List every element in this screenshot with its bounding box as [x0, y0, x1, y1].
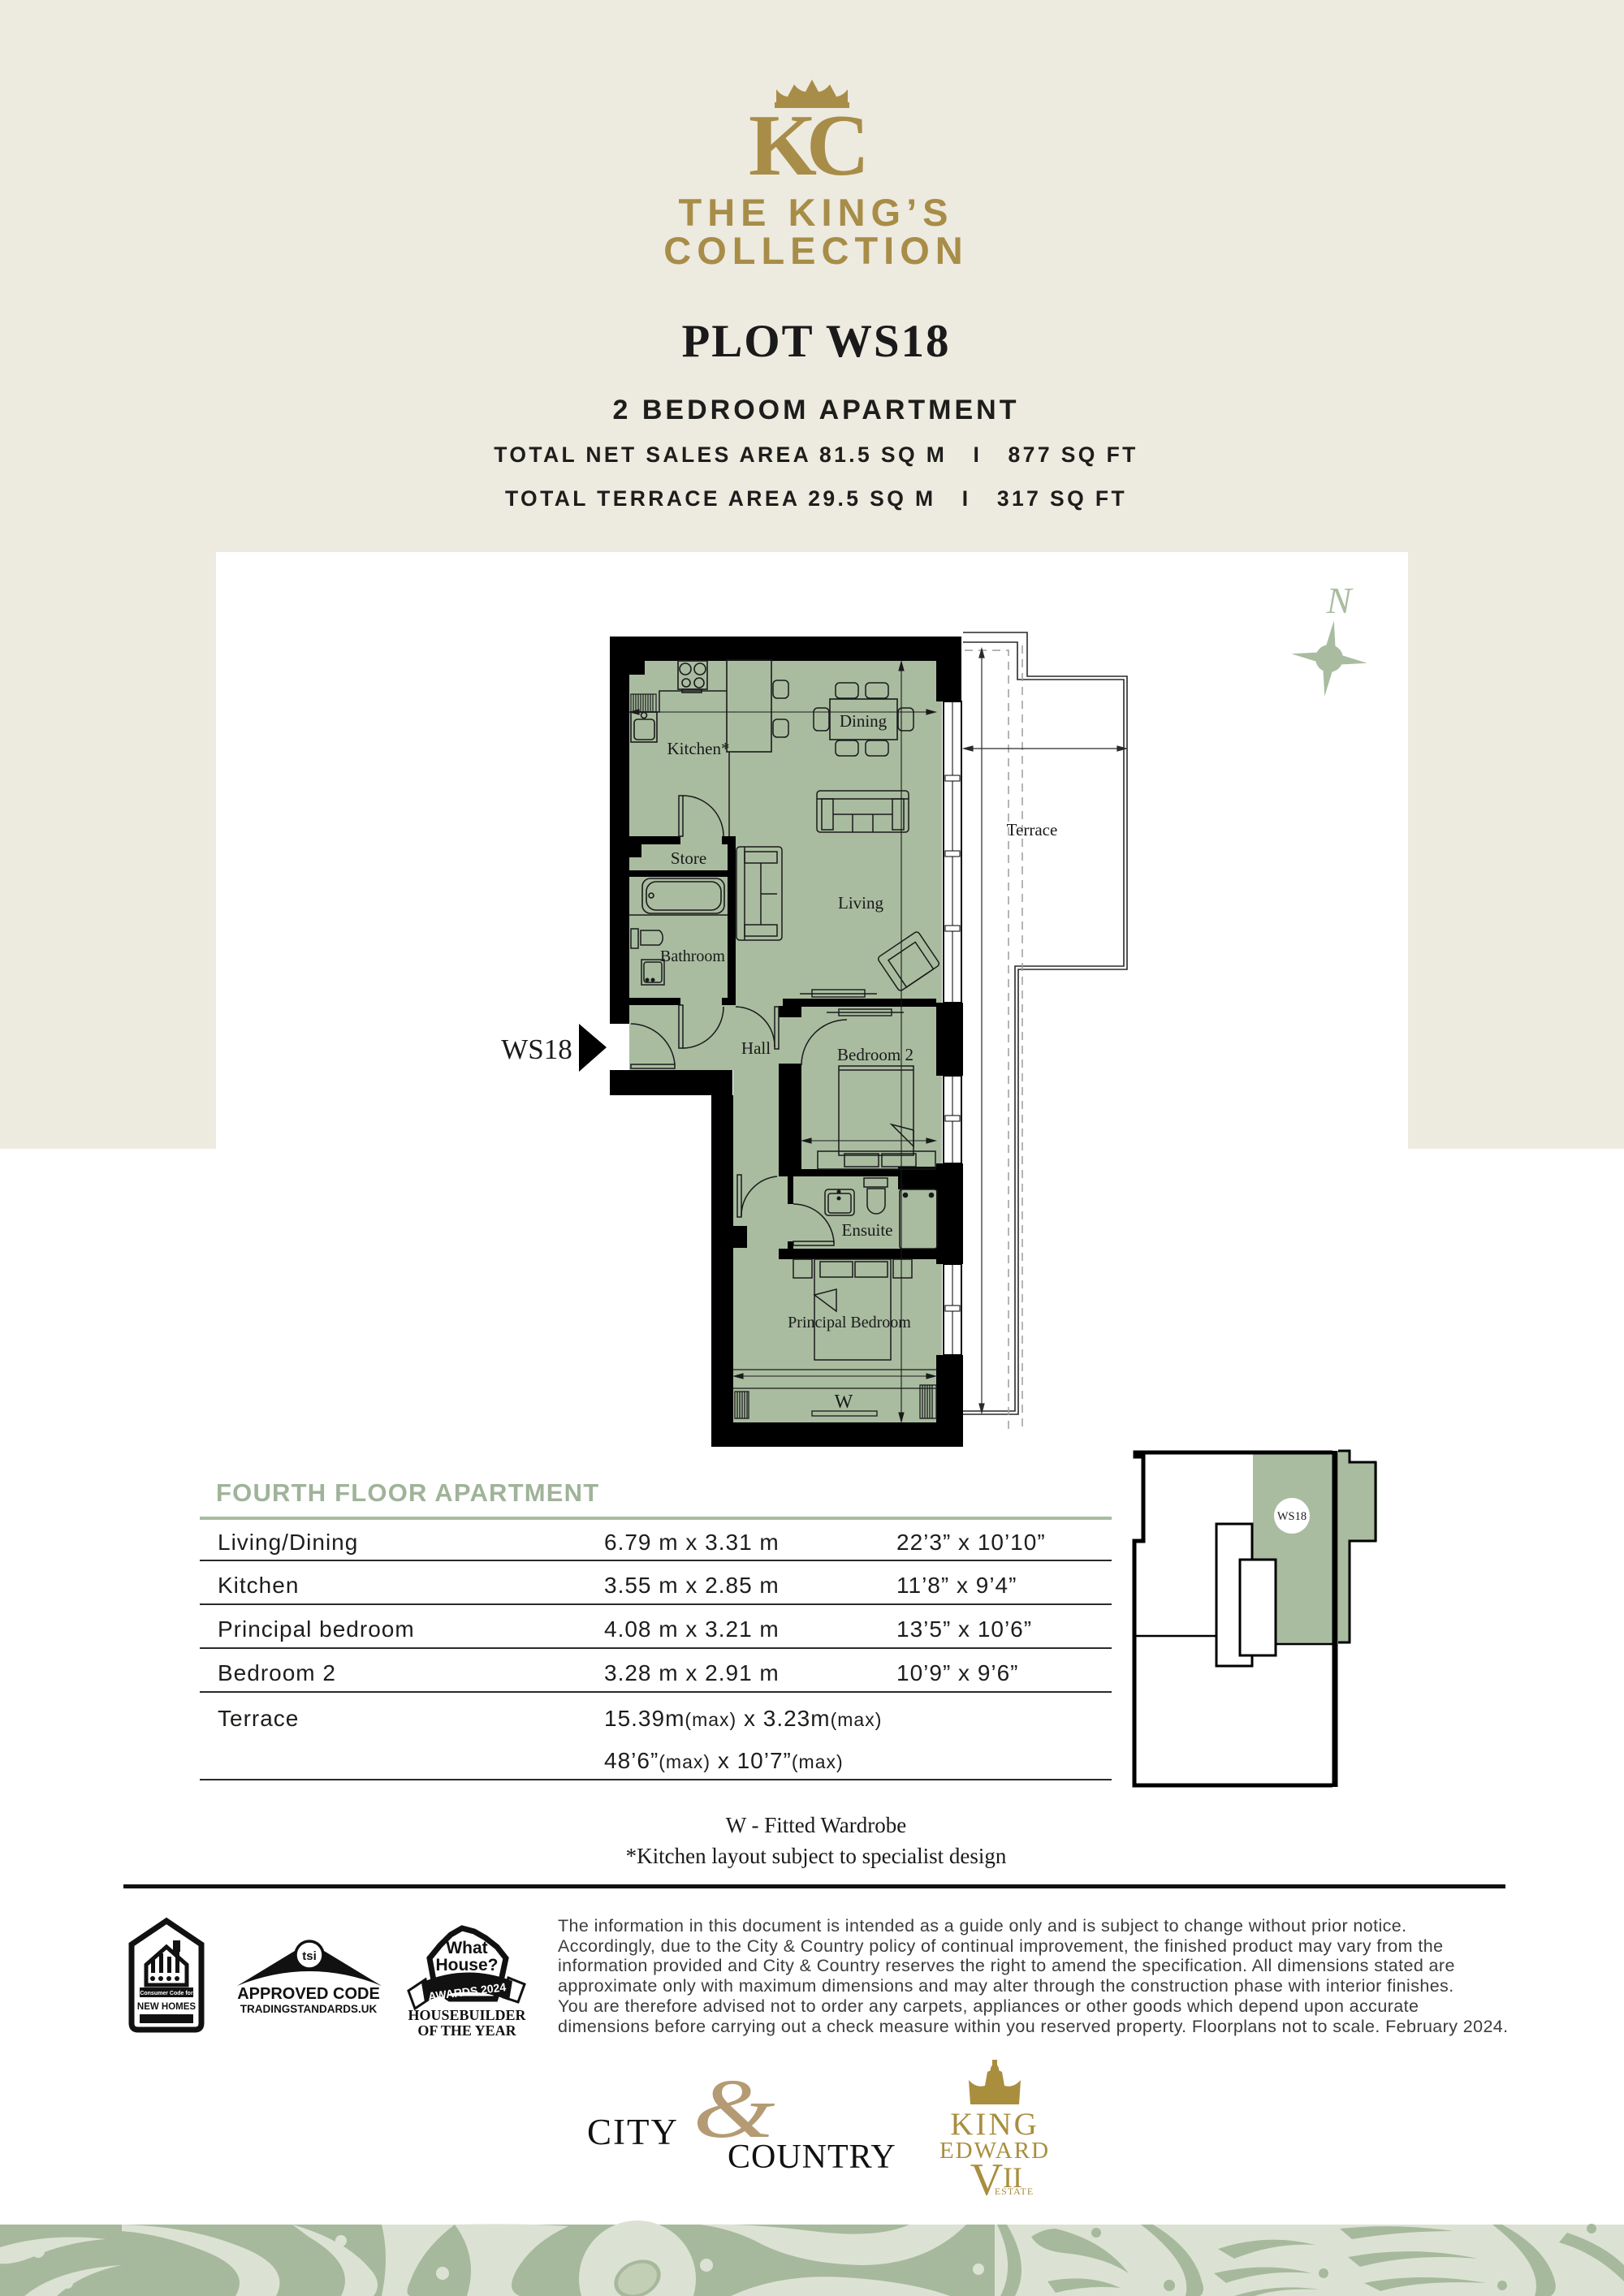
- svg-text:WS18: WS18: [501, 1034, 572, 1065]
- svg-text:HOUSEBUILDER: HOUSEBUILDER: [408, 2007, 526, 2023]
- svg-text:Bedroom 2: Bedroom 2: [837, 1045, 914, 1064]
- svg-text:NEW HOMES: NEW HOMES: [137, 2002, 197, 2012]
- svg-text:Dining: Dining: [840, 711, 888, 731]
- svg-text:APPROVED CODE: APPROVED CODE: [237, 1985, 380, 2003]
- svg-text:What: What: [446, 1939, 487, 1957]
- svg-text:N: N: [1326, 580, 1354, 621]
- svg-text:W: W: [835, 1392, 853, 1413]
- svg-text:Principal Bedroom: Principal Bedroom: [788, 1314, 911, 1331]
- svg-text:Terrace: Terrace: [1007, 820, 1058, 839]
- svg-text:Hall: Hall: [741, 1038, 771, 1058]
- svg-text:Bathroom: Bathroom: [660, 947, 725, 965]
- svg-text:Consumer Code for: Consumer Code for: [140, 1991, 193, 1996]
- svg-text:ESTATE: ESTATE: [995, 2186, 1034, 2197]
- svg-text:V: V: [970, 2155, 1003, 2205]
- svg-text:WS18: WS18: [1277, 1510, 1307, 1523]
- svg-text:CITY: CITY: [587, 2112, 679, 2152]
- svg-text:Living: Living: [838, 893, 883, 913]
- svg-text:TRADINGSTANDARDS.UK: TRADINGSTANDARDS.UK: [240, 2003, 378, 2015]
- svg-text:Kitchen*: Kitchen*: [667, 739, 730, 758]
- svg-text:tsi: tsi: [302, 1949, 317, 1963]
- svg-text:COUNTRY: COUNTRY: [728, 2138, 896, 2176]
- svg-text:Ensuite: Ensuite: [842, 1220, 893, 1240]
- svg-text:OF THE YEAR: OF THE YEAR: [417, 2022, 516, 2039]
- svg-text:KING: KING: [950, 2107, 1039, 2142]
- svg-text:House?: House?: [435, 1956, 498, 1974]
- svg-text:Store: Store: [671, 848, 706, 868]
